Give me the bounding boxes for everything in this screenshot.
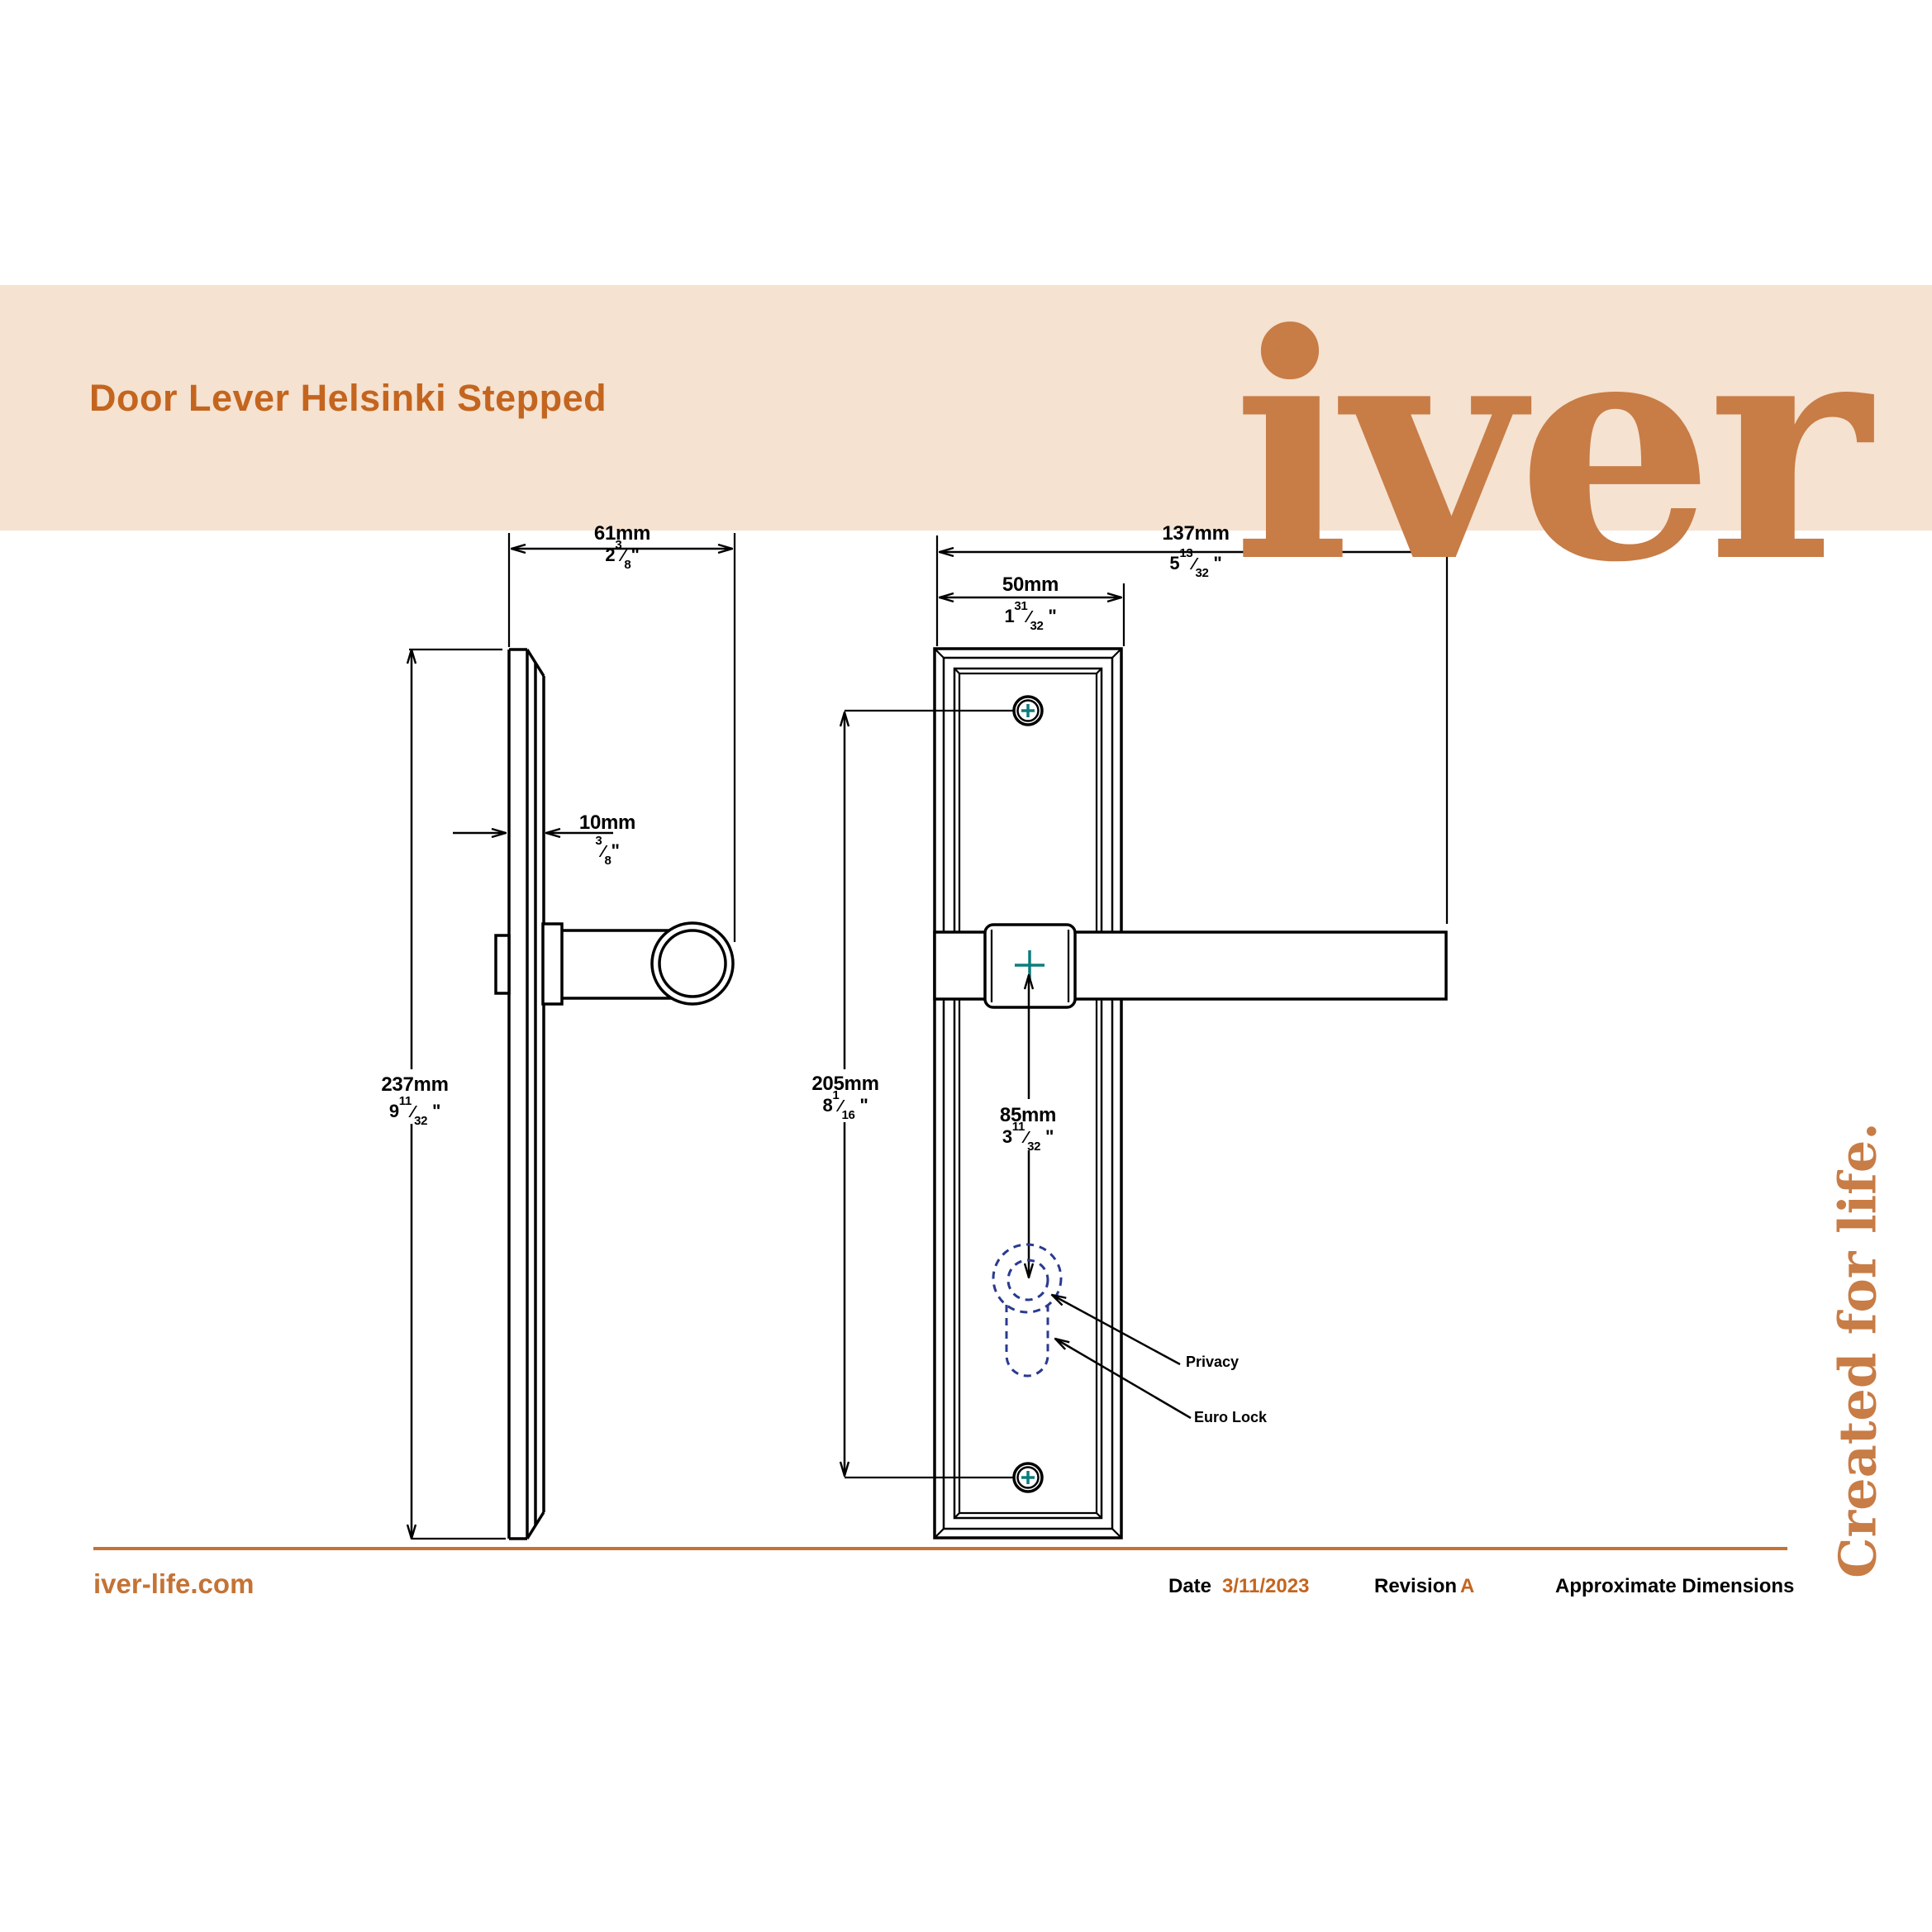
website-text: iver-life.com <box>93 1568 254 1600</box>
dim-screw-centres-label: 205mm 81⁄16 " <box>811 1073 878 1117</box>
privacy-keyhole <box>1008 1260 1048 1300</box>
euro-keyhole <box>993 1244 1061 1376</box>
spec-sheet-page: Door Lever Helsinki Stepped iver <box>0 0 1932 1932</box>
dim-plate-height-label: 237mm 911⁄32 " <box>381 1074 448 1123</box>
dim-projection-label: 137mm 513⁄32 " <box>1162 523 1229 575</box>
side-view <box>409 533 735 1539</box>
privacy-leader <box>1052 1295 1180 1364</box>
dim-plate-width-label: 50mm 131⁄32 " <box>1002 574 1059 628</box>
front-lever <box>935 925 1446 1007</box>
top-screw <box>1014 697 1042 725</box>
tagline-vertical: Created for life. <box>1828 1122 1888 1578</box>
front-backplate <box>935 649 1121 1538</box>
footer-divider <box>93 1547 1787 1550</box>
side-lever <box>543 923 733 1004</box>
dim-overall-width-label: 61mm 23⁄8" <box>594 523 650 567</box>
product-title: Door Lever Helsinki Stepped <box>89 377 607 420</box>
lever-boss <box>985 925 1075 1007</box>
dim-thickness-label: 10mm 3⁄8" <box>579 812 635 863</box>
bottom-screw <box>1014 1463 1042 1492</box>
euro-lock-label: Euro Lock <box>1194 1409 1267 1426</box>
revision-label: Revision <box>1374 1575 1457 1598</box>
side-lever-end-inner <box>659 930 726 997</box>
lever-bar <box>935 932 1446 999</box>
spindle-centre-cross <box>1015 950 1045 980</box>
privacy-label: Privacy <box>1186 1354 1239 1371</box>
date-value: 3/11/2023 <box>1222 1575 1309 1598</box>
dim-spindle-to-lock-label: 85mm 311⁄32 " <box>1000 1105 1056 1149</box>
iver-logo: iver <box>1232 294 1864 604</box>
revision-value: A <box>1460 1575 1474 1598</box>
side-lever-end-outer <box>652 923 733 1004</box>
dim-overall-width-lines <box>509 533 735 942</box>
side-spindle-lug <box>496 935 509 993</box>
euro-lock-leader <box>1055 1339 1191 1418</box>
date-label: Date <box>1168 1575 1211 1598</box>
side-backplate <box>509 650 544 1539</box>
front-view <box>845 535 1447 1538</box>
approximate-dimensions-note: Approximate Dimensions <box>1555 1575 1794 1598</box>
